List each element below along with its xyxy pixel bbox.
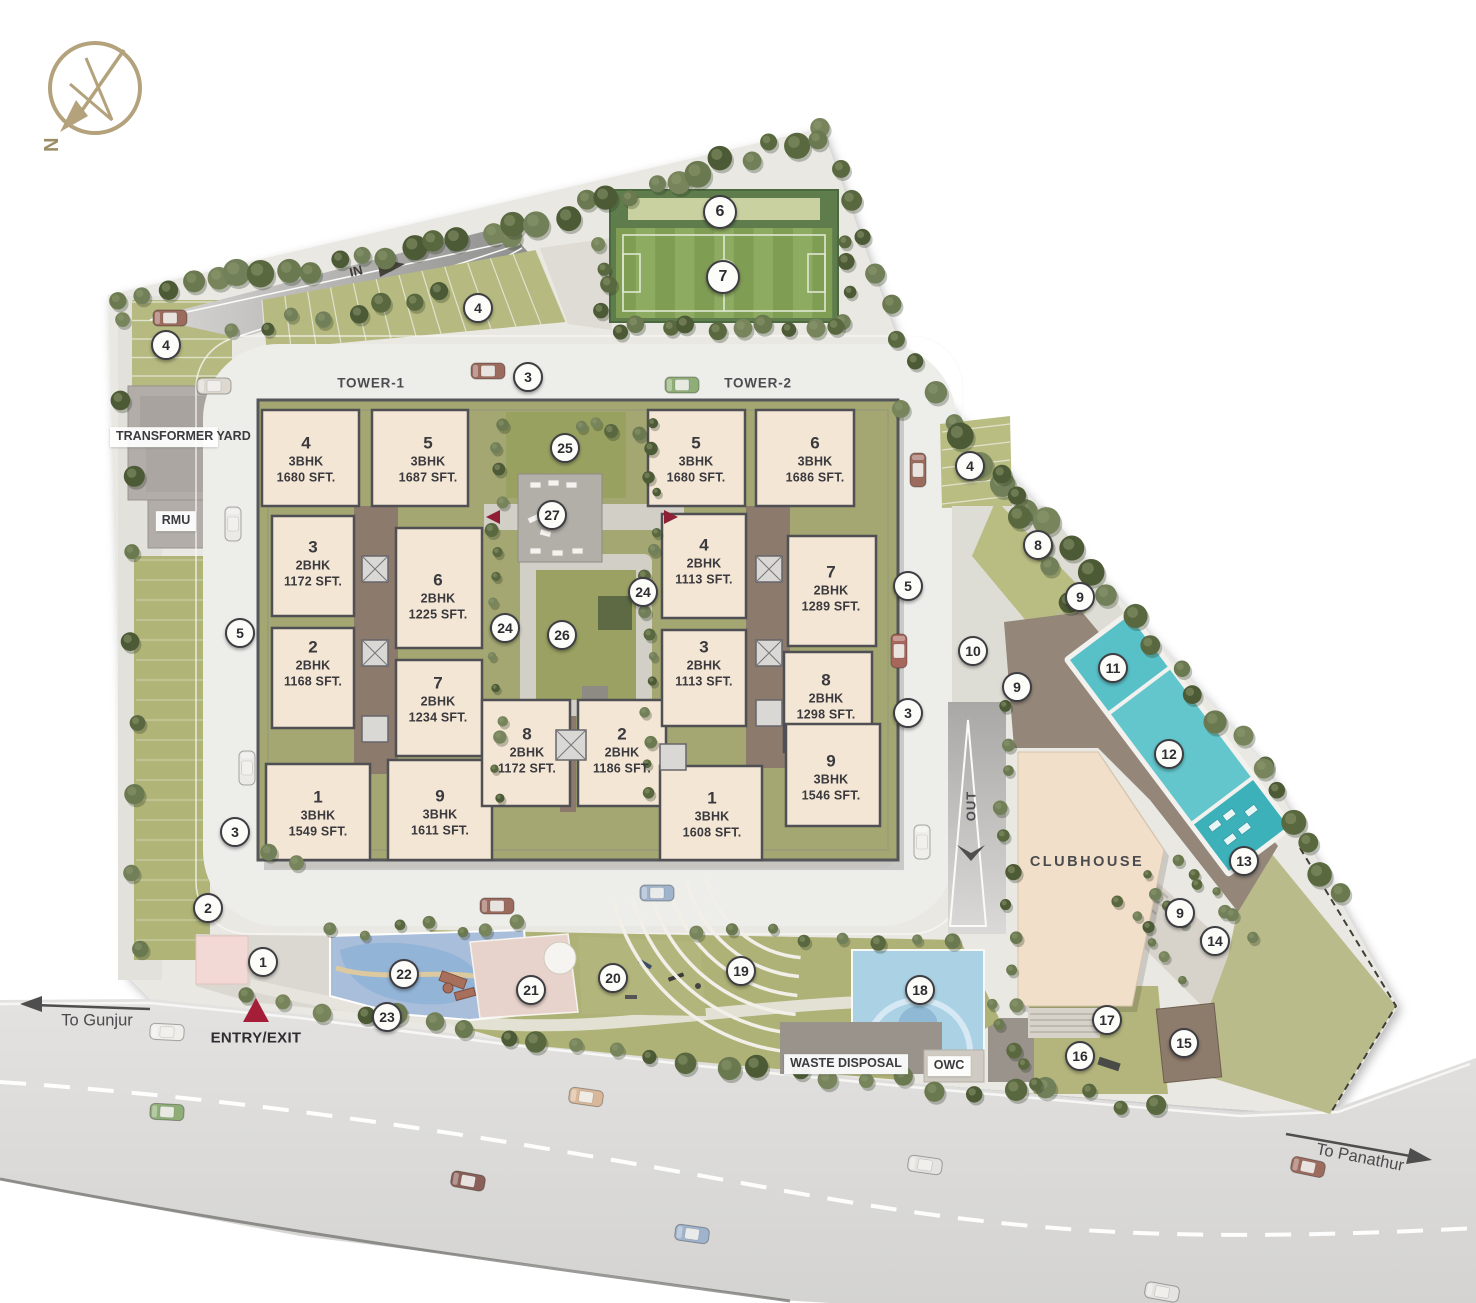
unit-t2-7: 72BHK1289 SFT. <box>802 561 861 615</box>
unit-t2-2: 22BHK1186 SFT. <box>593 723 651 777</box>
marker-27: 27 <box>537 500 567 530</box>
unit-t2-1: 13BHK1608 SFT. <box>683 787 742 841</box>
marker-3-north: 3 <box>513 362 543 392</box>
marker-4-north: 4 <box>463 293 493 323</box>
unit-t1-9: 93BHK1611 SFT. <box>411 785 469 839</box>
unit-t2-6: 63BHK1686 SFT. <box>786 432 845 486</box>
unit-t1-5: 53BHK1687 SFT. <box>399 432 458 486</box>
marker-20: 20 <box>598 963 628 993</box>
marker-15: 15 <box>1169 1028 1199 1058</box>
tower2-name: TOWER-2 <box>724 376 792 391</box>
marker-24-west: 24 <box>490 613 520 643</box>
marker-5-east: 5 <box>893 571 923 601</box>
marker-16: 16 <box>1065 1041 1095 1071</box>
marker-6: 6 <box>703 195 737 229</box>
marker-8: 8 <box>1023 530 1053 560</box>
unit-t1-6: 62BHK1225 SFT. <box>409 569 468 623</box>
marker-9-upper: 9 <box>1065 582 1095 612</box>
marker-14: 14 <box>1200 926 1230 956</box>
unit-t1-8: 82BHK1172 SFT. <box>498 723 556 777</box>
to-panathur-label: To Panathur <box>1315 1140 1406 1176</box>
out-label: OUT <box>964 791 979 821</box>
marker-4-east: 4 <box>955 451 985 481</box>
marker-24-east: 24 <box>628 577 658 607</box>
marker-26: 26 <box>547 620 577 650</box>
clubhouse-label: CLUBHOUSE <box>1030 854 1144 870</box>
unit-t1-4: 43BHK1680 SFT. <box>277 432 336 486</box>
marker-5-west: 5 <box>225 618 255 648</box>
transformer-yard-label: TRANSFORMER YARD <box>110 427 218 447</box>
marker-21: 21 <box>516 975 546 1005</box>
rmu-label: RMU <box>156 511 196 531</box>
marker-3-east: 3 <box>893 698 923 728</box>
marker-1: 1 <box>248 947 278 977</box>
marker-11: 11 <box>1098 653 1128 683</box>
marker-13: 13 <box>1229 846 1259 876</box>
marker-2: 2 <box>193 893 223 923</box>
unit-t2-8: 82BHK1298 SFT. <box>797 669 856 723</box>
marker-25: 25 <box>550 433 580 463</box>
marker-23: 23 <box>372 1002 402 1032</box>
owc-label: OWC <box>928 1056 971 1076</box>
waste-disposal-label: WASTE DISPOSAL <box>784 1054 908 1074</box>
marker-7: 7 <box>706 260 740 294</box>
marker-19: 19 <box>726 956 756 986</box>
unit-t1-2: 22BHK1168 SFT. <box>284 636 342 690</box>
unit-t2-4: 42BHK1113 SFT. <box>675 534 732 588</box>
unit-t1-3: 32BHK1172 SFT. <box>284 536 342 590</box>
marker-3-west: 3 <box>220 817 250 847</box>
marker-10: 10 <box>958 636 988 666</box>
marker-12: 12 <box>1154 739 1184 769</box>
unit-t1-1: 13BHK1549 SFT. <box>289 786 348 840</box>
entry-exit-label: ENTRY/EXIT <box>211 1030 302 1047</box>
to-gunjur-label: To Gunjur <box>61 1012 133 1031</box>
marker-22: 22 <box>389 959 419 989</box>
marker-17: 17 <box>1092 1005 1122 1035</box>
marker-18: 18 <box>905 975 935 1005</box>
marker-4-west: 4 <box>151 330 181 360</box>
unit-t2-5: 53BHK1680 SFT. <box>667 432 726 486</box>
site-master-plan: N TOWER-1 TOWER-2 43BHK1680 SFT. 53BHK16… <box>0 0 1476 1303</box>
tower1-name: TOWER-1 <box>337 376 405 391</box>
unit-t2-9: 93BHK1546 SFT. <box>802 750 861 804</box>
labels-layer: TOWER-1 TOWER-2 43BHK1680 SFT. 53BHK1687… <box>0 0 1476 1303</box>
marker-9-mid: 9 <box>1002 672 1032 702</box>
in-label: IN <box>348 262 364 280</box>
marker-9-south: 9 <box>1165 898 1195 928</box>
unit-t2-3: 32BHK1113 SFT. <box>675 636 732 690</box>
unit-t1-7: 72BHK1234 SFT. <box>409 672 468 726</box>
